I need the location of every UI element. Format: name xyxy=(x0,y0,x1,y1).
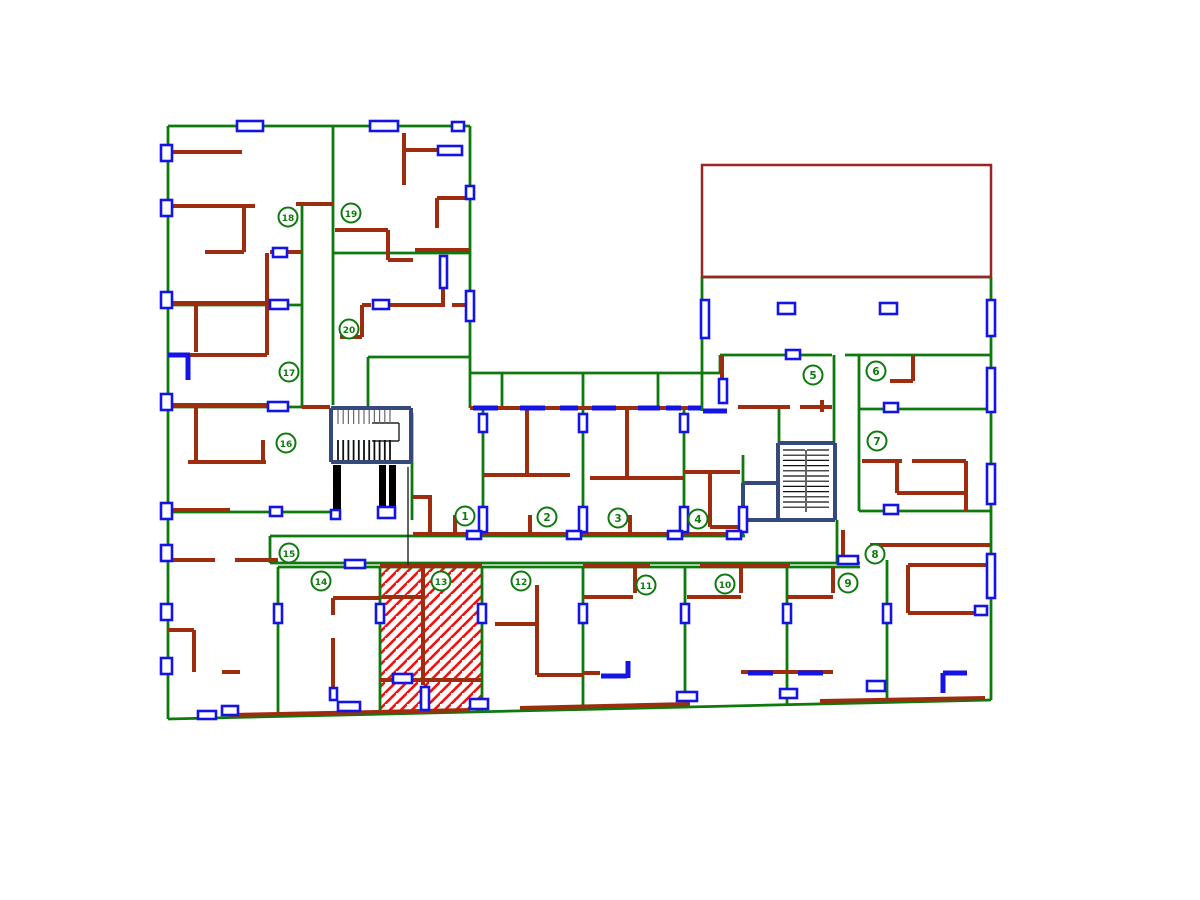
floor-plan-svg: 1234567891011121314151617181920 xyxy=(0,0,1200,900)
unit-label-7[interactable]: 7 xyxy=(868,432,887,451)
door-marker xyxy=(274,604,282,623)
door-marker xyxy=(727,531,741,539)
door-marker xyxy=(987,554,995,598)
door-marker xyxy=(466,291,474,321)
unit-label-4[interactable]: 4 xyxy=(689,510,708,529)
unit-label-17[interactable]: 17 xyxy=(280,363,299,382)
unit-label-12[interactable]: 12 xyxy=(512,572,531,591)
door-marker xyxy=(331,510,340,519)
door-marker xyxy=(567,531,581,539)
door-marker xyxy=(579,414,587,432)
door-marker xyxy=(975,606,987,615)
door-marker xyxy=(270,507,282,516)
unit-label-18[interactable]: 18 xyxy=(279,208,298,227)
door-marker xyxy=(161,292,172,308)
door-marker xyxy=(270,300,288,309)
door-marker xyxy=(701,300,709,338)
door-marker xyxy=(579,507,587,532)
door-marker xyxy=(680,507,688,532)
door-marker xyxy=(452,122,464,131)
unit-label-9[interactable]: 9 xyxy=(839,574,858,593)
door-marker xyxy=(884,505,898,514)
unit-label-1[interactable]: 1 xyxy=(456,507,475,526)
door-marker xyxy=(987,300,995,336)
door-marker xyxy=(161,604,172,620)
door-marker xyxy=(376,604,384,623)
unit-label-6[interactable]: 6 xyxy=(867,362,886,381)
door-marker xyxy=(739,507,747,532)
door-marker xyxy=(273,248,287,257)
door-marker xyxy=(466,186,474,199)
unit-badge-number: 10 xyxy=(719,581,732,591)
unit-badge-number: 11 xyxy=(640,582,653,592)
unit-label-10[interactable]: 10 xyxy=(716,575,735,594)
door-marker xyxy=(393,674,412,683)
unit-badge-number: 16 xyxy=(280,440,293,450)
door-marker xyxy=(338,702,360,711)
door-marker xyxy=(237,121,263,131)
door-marker xyxy=(161,658,172,674)
unit-badge-number: 13 xyxy=(435,578,448,588)
door-marker xyxy=(884,403,898,412)
door-marker xyxy=(719,379,727,403)
door-marker xyxy=(778,303,795,314)
door-marker xyxy=(161,200,172,216)
unit-label-5[interactable]: 5 xyxy=(804,366,823,385)
door-marker xyxy=(161,545,172,561)
door-marker xyxy=(479,507,487,532)
door-marker xyxy=(987,464,995,504)
door-marker xyxy=(780,689,797,698)
unit-badge-number: 20 xyxy=(343,326,356,336)
unit-label-13[interactable]: 13 xyxy=(432,572,451,591)
unit-label-16[interactable]: 16 xyxy=(277,434,296,453)
unit-label-3[interactable]: 3 xyxy=(609,509,628,528)
unit-badge-number: 12 xyxy=(515,578,528,588)
door-marker xyxy=(161,145,172,161)
door-marker xyxy=(470,699,488,709)
door-marker xyxy=(373,300,389,309)
unit-label-19[interactable]: 19 xyxy=(342,204,361,223)
door-marker xyxy=(161,503,172,519)
unit-badge-number: 4 xyxy=(694,514,701,526)
door-marker xyxy=(987,368,995,412)
door-marker xyxy=(786,350,800,359)
column xyxy=(333,465,341,515)
door-marker xyxy=(467,531,481,539)
unit-badge-number: 2 xyxy=(543,512,550,524)
unit-label-20[interactable]: 20 xyxy=(340,320,359,339)
floor-plan-canvas: 1234567891011121314151617181920 xyxy=(0,0,1200,900)
door-marker xyxy=(883,604,891,623)
unit-label-15[interactable]: 15 xyxy=(280,544,299,563)
wall-segment-green xyxy=(168,700,991,719)
unit-label-2[interactable]: 2 xyxy=(538,508,557,527)
unit-badge-number: 5 xyxy=(809,370,816,382)
door-marker xyxy=(370,121,398,131)
door-marker xyxy=(330,688,337,700)
door-marker xyxy=(161,394,172,410)
door-marker xyxy=(345,560,365,568)
door-marker xyxy=(838,556,858,564)
unit-badge-number: 3 xyxy=(614,513,621,525)
door-marker xyxy=(680,414,688,432)
door-marker xyxy=(880,303,897,314)
door-marker xyxy=(222,706,238,715)
unit-badge-number: 9 xyxy=(844,578,851,590)
unit-badge-number: 18 xyxy=(282,214,295,224)
door-marker xyxy=(681,604,689,623)
unit-label-8[interactable]: 8 xyxy=(866,545,885,564)
door-marker xyxy=(421,687,429,710)
door-marker xyxy=(438,146,462,155)
door-marker xyxy=(198,711,216,719)
door-marker xyxy=(378,507,395,518)
door-marker xyxy=(478,604,486,623)
door-marker xyxy=(268,402,288,411)
door-marker xyxy=(668,531,682,539)
unit-badge-number: 8 xyxy=(871,549,878,561)
selected-unit-region-13[interactable] xyxy=(380,567,482,714)
unit-badge-number: 1 xyxy=(461,511,468,523)
unit-badge-number: 17 xyxy=(283,369,296,379)
unit-label-14[interactable]: 14 xyxy=(312,572,331,591)
door-marker xyxy=(479,414,487,432)
door-marker xyxy=(440,256,447,288)
unit-badge-number: 6 xyxy=(872,366,879,378)
unit-badge-number: 14 xyxy=(315,578,328,588)
terrace-outline xyxy=(702,165,991,277)
door-marker xyxy=(677,692,697,701)
unit-badge-number: 15 xyxy=(283,550,296,560)
door-marker xyxy=(783,604,791,623)
door-marker xyxy=(579,604,587,623)
door-marker xyxy=(867,681,885,691)
unit-badge-number: 19 xyxy=(345,210,358,220)
unit-label-11[interactable]: 11 xyxy=(637,576,656,595)
unit-badge-number: 7 xyxy=(873,436,880,448)
